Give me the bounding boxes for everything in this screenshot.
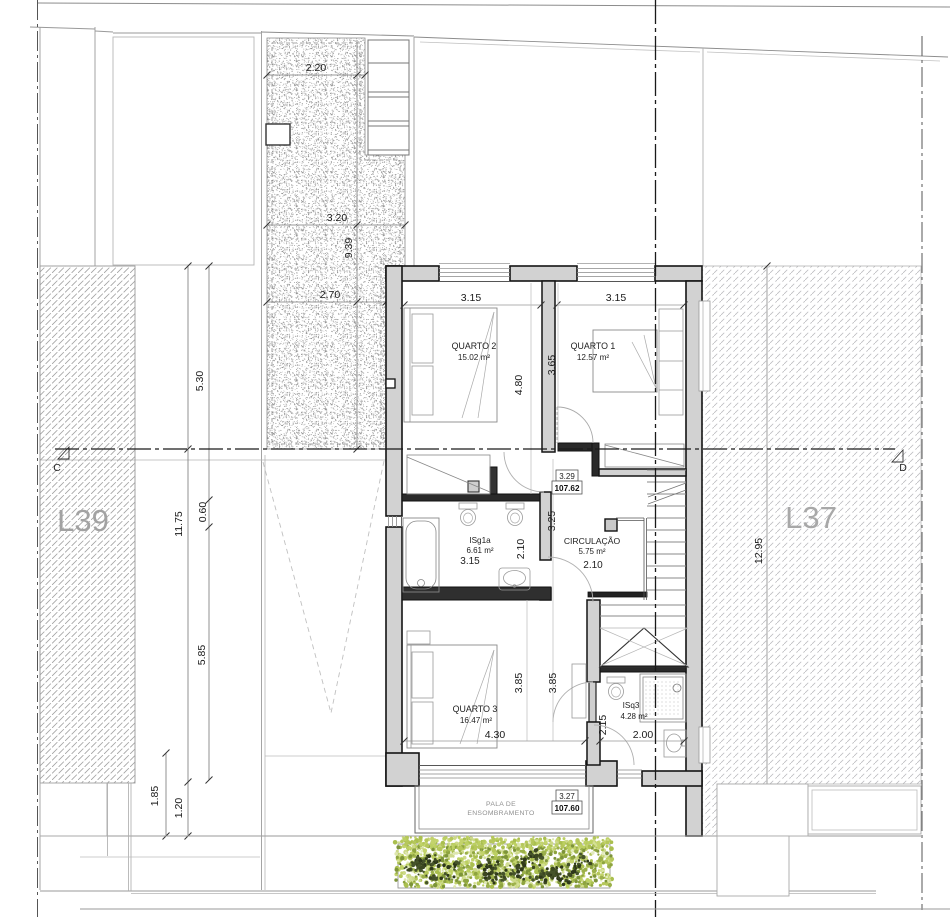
svg-text:12.57 m²: 12.57 m² [577, 353, 610, 362]
svg-text:5.30: 5.30 [194, 371, 206, 392]
svg-text:15.02 m²: 15.02 m² [458, 353, 491, 362]
svg-text:PALA DE: PALA DE [486, 801, 516, 808]
svg-text:3.29: 3.29 [559, 472, 575, 481]
svg-text:11.75: 11.75 [173, 511, 185, 537]
svg-text:2.15: 2.15 [597, 715, 609, 736]
svg-text:9.39: 9.39 [343, 238, 355, 259]
svg-text:4.80: 4.80 [513, 375, 525, 396]
svg-text:3.15: 3.15 [606, 292, 627, 304]
svg-text:3.85: 3.85 [547, 673, 559, 694]
svg-text:D: D [899, 462, 907, 474]
svg-text:2.00: 2.00 [633, 729, 654, 741]
svg-text:3.27: 3.27 [559, 792, 575, 801]
svg-text:2.10: 2.10 [583, 560, 603, 571]
svg-text:2.70: 2.70 [320, 289, 341, 301]
svg-text:C: C [53, 462, 61, 474]
svg-text:CIRCULAÇÃO: CIRCULAÇÃO [564, 536, 621, 546]
svg-text:QUARTO 2: QUARTO 2 [452, 341, 497, 351]
svg-text:16.47 m²: 16.47 m² [460, 716, 493, 725]
svg-text:QUARTO 3: QUARTO 3 [453, 704, 498, 714]
svg-text:12.95: 12.95 [753, 538, 765, 564]
svg-text:3.15: 3.15 [461, 292, 482, 304]
svg-text:0.60: 0.60 [197, 502, 209, 523]
svg-text:5.85: 5.85 [196, 645, 208, 666]
svg-text:L37: L37 [785, 500, 837, 535]
svg-text:5.75 m²: 5.75 m² [578, 547, 605, 556]
svg-text:107.60: 107.60 [554, 804, 579, 813]
svg-text:4.30: 4.30 [485, 729, 506, 741]
svg-text:4.28 m²: 4.28 m² [620, 712, 647, 721]
svg-text:ENSOMBRAMENTO: ENSOMBRAMENTO [467, 810, 534, 817]
svg-text:L39: L39 [57, 503, 109, 538]
svg-text:3.85: 3.85 [513, 673, 525, 694]
svg-text:107.62: 107.62 [554, 484, 579, 493]
svg-text:3.65: 3.65 [546, 355, 558, 376]
svg-text:3.20: 3.20 [327, 212, 348, 224]
svg-text:ISg1a: ISg1a [469, 536, 491, 545]
svg-text:ISq3: ISq3 [623, 701, 640, 710]
svg-text:QUARTO 1: QUARTO 1 [571, 341, 616, 351]
svg-text:2.10: 2.10 [515, 539, 527, 560]
svg-text:3.15: 3.15 [460, 556, 480, 567]
svg-text:1.85: 1.85 [149, 786, 161, 807]
svg-text:1.20: 1.20 [173, 798, 185, 819]
svg-text:3.25: 3.25 [546, 511, 558, 532]
svg-text:6.61 m²: 6.61 m² [466, 546, 493, 555]
svg-text:2.20: 2.20 [306, 62, 327, 74]
